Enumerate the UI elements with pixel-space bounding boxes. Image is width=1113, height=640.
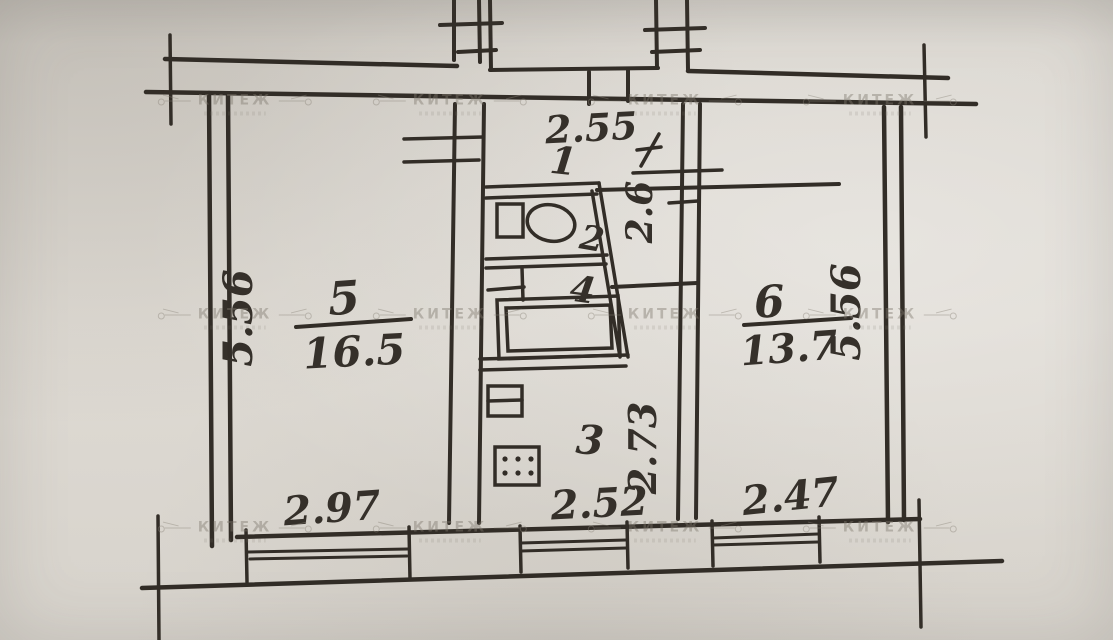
stove bbox=[495, 447, 539, 485]
label-room6-width: 2.47 bbox=[739, 468, 842, 525]
kitchen-fixtures bbox=[488, 386, 539, 485]
bathroom-block bbox=[480, 183, 628, 370]
label-room6-height: 5.56 bbox=[823, 263, 870, 360]
label-room5-width: 2.97 bbox=[281, 482, 383, 536]
toilet-tank bbox=[497, 204, 523, 237]
sink-mark bbox=[488, 287, 524, 290]
label-room5-area: 16.5 bbox=[302, 324, 407, 378]
labels: 5 16.5 2.97 5.56 1 2.55 2.6 2 4 3 2.52 2… bbox=[215, 103, 870, 536]
bathtub-inner bbox=[506, 305, 612, 351]
pen-marks bbox=[637, 134, 661, 166]
toilet-bowl bbox=[524, 200, 578, 245]
entry-shafts bbox=[440, 0, 705, 104]
stove-burners bbox=[502, 456, 533, 475]
label-room5-number: 5 bbox=[326, 270, 362, 326]
label-room5-height: 5.56 bbox=[215, 269, 262, 366]
sink-mark bbox=[522, 268, 523, 300]
label-hall-depth: 2.6 bbox=[619, 181, 661, 245]
label-kitchen-depth: 2.73 bbox=[620, 402, 665, 496]
windows bbox=[248, 534, 818, 559]
label-room6-number: 6 bbox=[753, 276, 786, 329]
label-hall-width: 2.55 bbox=[543, 103, 639, 153]
label-kitchen-number: 3 bbox=[574, 416, 605, 465]
floor-plan-drawing: 5 16.5 2.97 5.56 1 2.55 2.6 2 4 3 2.52 2… bbox=[0, 0, 1113, 640]
floor-plan-photo: 5 16.5 2.97 5.56 1 2.55 2.6 2 4 3 2.52 2… bbox=[0, 0, 1113, 640]
